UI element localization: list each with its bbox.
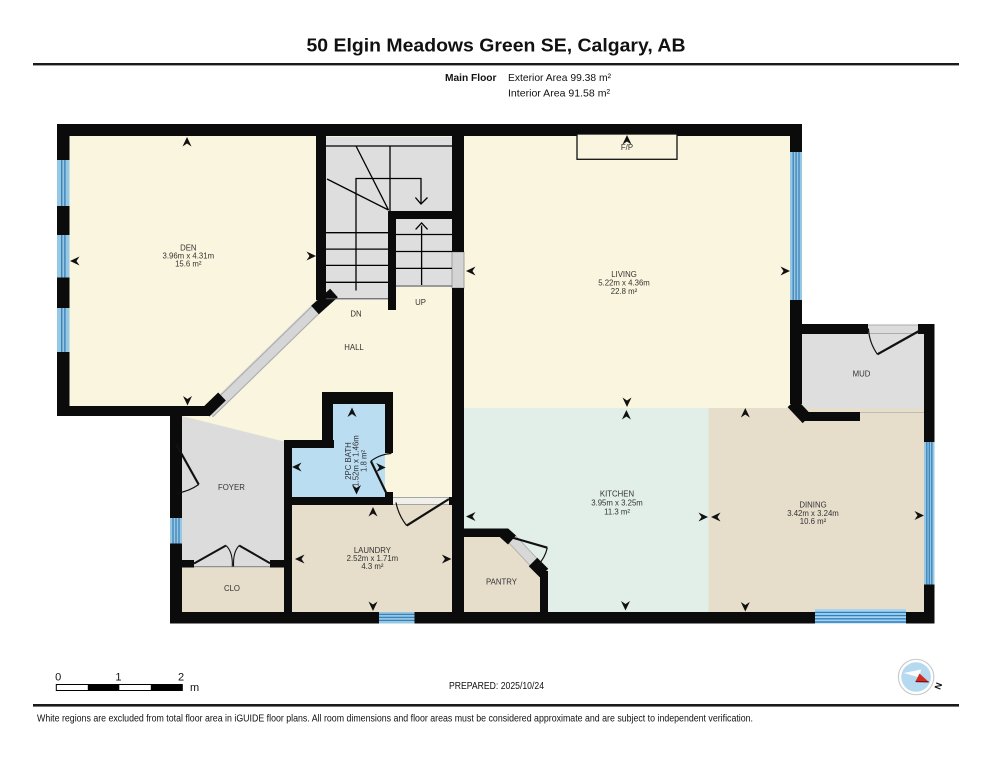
- svg-text:KITCHEN: KITCHEN: [600, 490, 634, 499]
- svg-text:4.3 m²: 4.3 m²: [361, 562, 383, 571]
- svg-text:HALL: HALL: [344, 343, 364, 352]
- svg-text:F/P: F/P: [621, 143, 633, 152]
- svg-text:DN: DN: [350, 310, 361, 319]
- svg-text:UP: UP: [415, 298, 426, 307]
- svg-text:MUD: MUD: [853, 369, 871, 378]
- svg-text:3.95m x 3.25m: 3.95m x 3.25m: [591, 499, 643, 508]
- svg-text:1.8 m²: 1.8 m²: [360, 450, 369, 472]
- svg-text:FOYER: FOYER: [218, 483, 245, 492]
- svg-text:22.8 m²: 22.8 m²: [611, 287, 638, 296]
- svg-text:CLO: CLO: [224, 584, 240, 593]
- svg-text:0: 0: [55, 672, 61, 684]
- svg-text:2: 2: [178, 672, 184, 684]
- svg-text:15.6 m²: 15.6 m²: [175, 260, 202, 269]
- svg-text:PANTRY: PANTRY: [486, 578, 518, 587]
- svg-text:Main Floor: Main Floor: [445, 72, 497, 84]
- svg-text:PREPARED: 2025/10/24: PREPARED: 2025/10/24: [449, 680, 544, 692]
- svg-text:Exterior Area 99.38 m²: Exterior Area 99.38 m²: [508, 72, 611, 84]
- svg-text:m: m: [190, 682, 199, 694]
- svg-text:10.6 m²: 10.6 m²: [800, 517, 827, 526]
- svg-text:Interior Area 91.58 m²: Interior Area 91.58 m²: [508, 88, 610, 100]
- svg-text:1: 1: [115, 672, 121, 684]
- svg-text:11.3 m²: 11.3 m²: [604, 507, 630, 516]
- svg-text:White regions are excluded fro: White regions are excluded from total fl…: [37, 714, 753, 725]
- svg-text:50 Elgin Meadows Green SE, Cal: 50 Elgin Meadows Green SE, Calgary, AB: [307, 35, 686, 56]
